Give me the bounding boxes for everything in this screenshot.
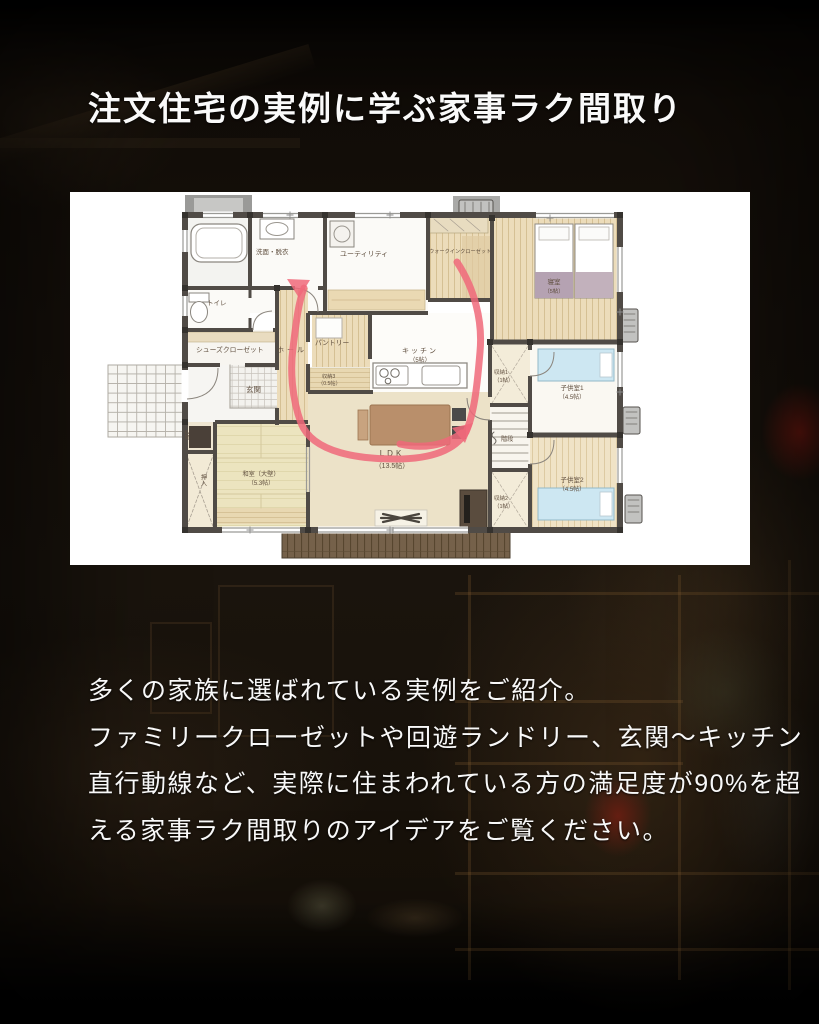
description-line: 多くの家族に選ばれている実例をご紹介。: [88, 668, 748, 715]
label-washitsu: 和室（大壁）: [242, 470, 279, 478]
floor-plan: 洗面・脱衣 ユーティリティ ウォークインクローゼット 寝室 （5帖） トイレ シ…: [70, 192, 750, 565]
label-storage1-size: （1帖）: [494, 376, 514, 384]
description-block: 多くの家族に選ばれている実例をご紹介。 ファミリークローゼットや回遊ランドリー、…: [88, 668, 748, 854]
label-kids1: 子供室1: [560, 383, 584, 392]
dining-bench: [358, 410, 368, 440]
tv-screen: [464, 495, 470, 523]
label-wic: ウォークインクローゼット: [429, 247, 491, 255]
butsudan-cabinet: [189, 426, 211, 448]
kitchen-sink: [422, 366, 460, 385]
label-storage3-size: （0.5帖）: [318, 379, 341, 387]
label-storage2: 収納2: [494, 494, 508, 502]
label-stairs: 階段: [501, 435, 513, 443]
label-kitchen-size: （5帖）: [409, 356, 430, 364]
entrance-porch-tiles: [108, 365, 185, 437]
label-oshiire: 押入: [200, 473, 207, 486]
wic-shelf-area: [462, 236, 492, 298]
kids2-pillow: [600, 492, 612, 516]
label-kids2: 子供室2: [560, 475, 584, 484]
label-washroom: 洗面・脱衣: [256, 247, 289, 256]
page-title: 注文住宅の実例に学ぶ家事ラク間取り: [88, 82, 768, 130]
wood-deck: [282, 531, 510, 558]
promo-page: 注文住宅の実例に学ぶ家事ラク間取り: [0, 0, 819, 1024]
label-utility: ユーティリティ: [340, 250, 388, 258]
dining-table: [370, 405, 450, 445]
washitsu-engawa: [217, 508, 306, 524]
dining-chair: [452, 408, 466, 421]
label-storage3: 収納3: [322, 372, 335, 380]
label-bedroom-size: （5帖）: [544, 287, 564, 295]
label-butsuma: 仏間: [184, 430, 189, 441]
kids1-pillow: [600, 353, 612, 377]
service-porch-inner: [194, 198, 243, 212]
description-line: 直行動線など、実際に住まわれている方の満足度が90%を超: [88, 761, 748, 808]
label-washitsu-size: （5.3帖）: [248, 479, 274, 487]
label-kitchen: キッチン: [402, 347, 438, 355]
description-line: える家事ラク間取りのアイデアをご覧ください。: [88, 808, 748, 855]
toilet-tank: [189, 293, 209, 302]
label-shoe-closet: シューズクローゼット: [196, 345, 264, 354]
label-kids1-size: （4.5帖）: [559, 393, 585, 401]
pantry-shelf: [316, 318, 342, 338]
label-storage1: 収納1: [494, 368, 508, 376]
label-storage2-size: （1帖）: [494, 502, 514, 510]
floor-plan-panel: 洗面・脱衣 ユーティリティ ウォークインクローゼット 寝室 （5帖） トイレ シ…: [70, 192, 750, 565]
label-bedroom: 寝室: [548, 277, 562, 286]
toilet-bowl: [191, 302, 208, 323]
shoe-shelf: [187, 332, 275, 342]
description-line: ファミリークローゼットや回遊ランドリー、玄関〜キッチン: [88, 715, 748, 762]
storage3-shelf: [310, 368, 370, 392]
label-genkan: 玄関: [246, 384, 261, 394]
label-pantry: パントリー: [315, 339, 350, 347]
label-kids2-size: （4.5帖）: [559, 485, 585, 493]
label-toilet: トイレ: [207, 300, 227, 307]
